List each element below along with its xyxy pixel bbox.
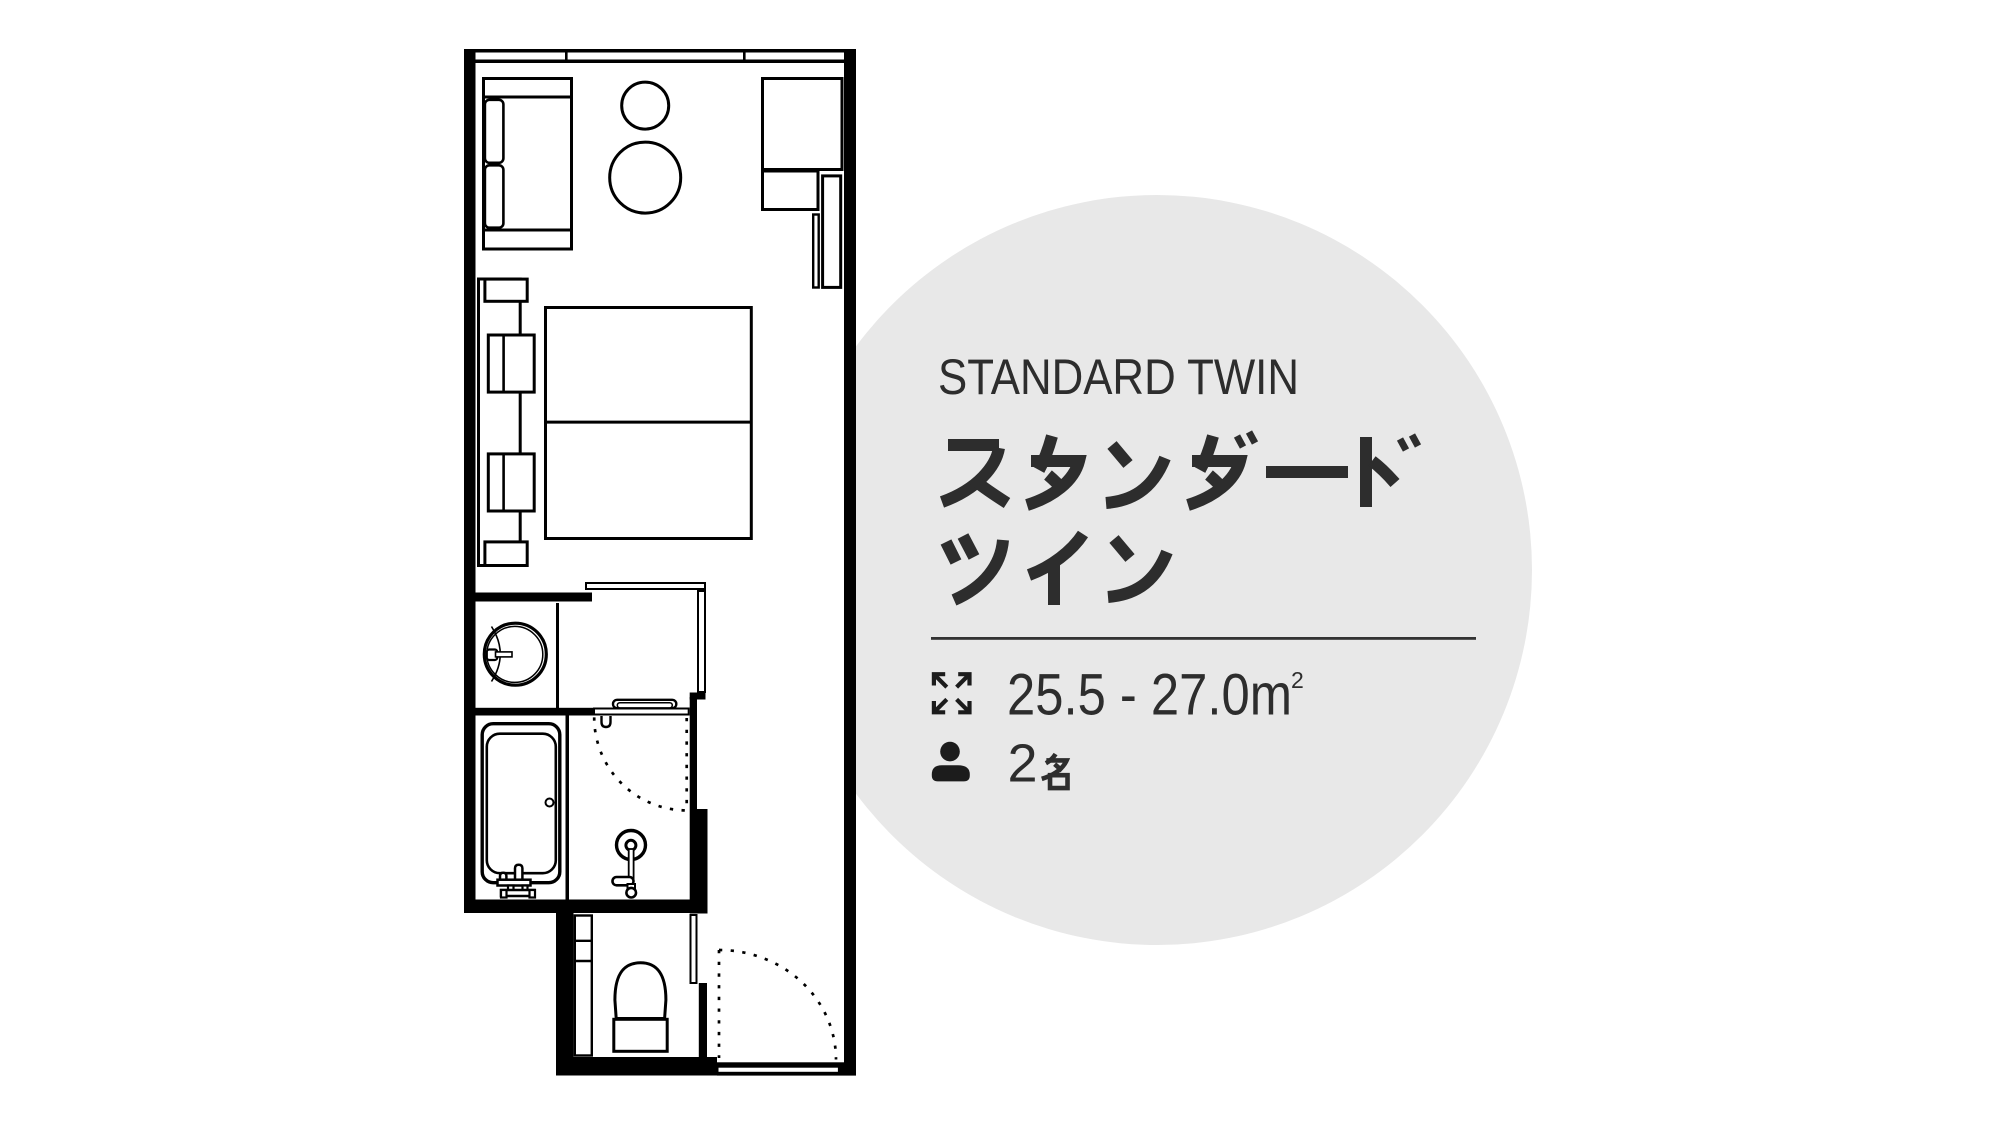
- svg-text:STANDARD TWIN: STANDARD TWIN: [938, 349, 1299, 405]
- svg-text:2: 2: [1291, 667, 1304, 693]
- svg-text:25.5 - 27.0m: 25.5 - 27.0m: [1007, 663, 1292, 728]
- svg-text:2: 2: [1008, 734, 1038, 794]
